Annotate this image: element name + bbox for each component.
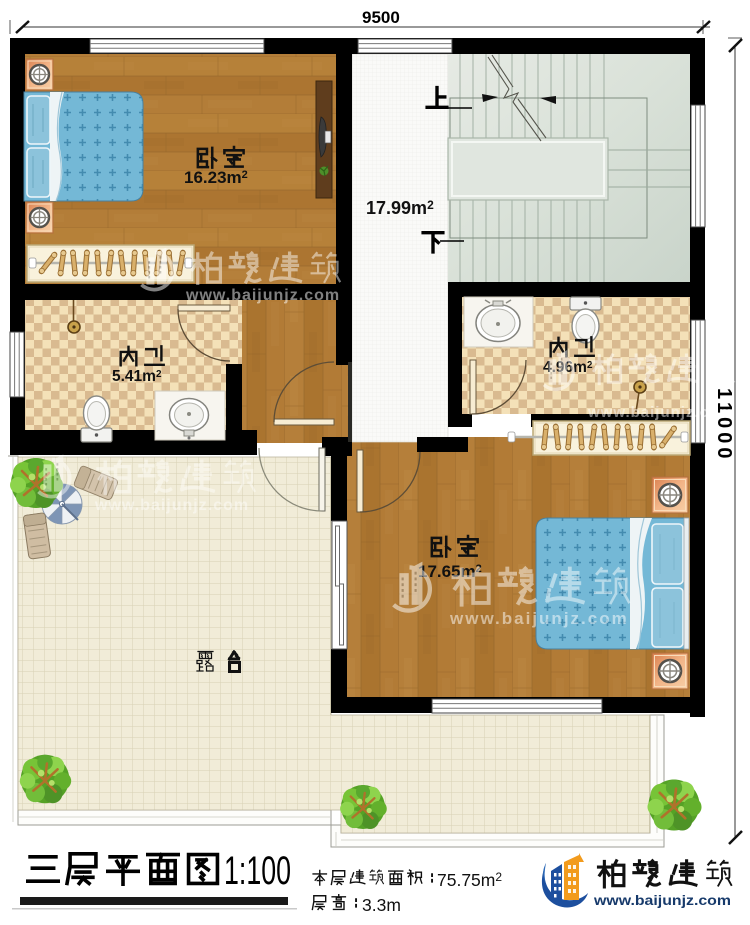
svg-text:www.baijunjz.com: www.baijunjz.com <box>593 892 731 908</box>
svg-text:75.75m2: 75.75m2 <box>437 870 502 890</box>
svg-text:1:100: 1:100 <box>224 849 291 893</box>
svg-text:www.baijunjz.com: www.baijunjz.com <box>587 404 733 421</box>
svg-text:9500: 9500 <box>362 8 400 27</box>
svg-text:www.baijunjz.com: www.baijunjz.com <box>185 287 340 304</box>
svg-text:11000: 11000 <box>713 388 735 463</box>
svg-text:5.41m2: 5.41m2 <box>112 368 162 385</box>
svg-text:17.99m2: 17.99m2 <box>366 198 434 218</box>
svg-text:www.baijunjz.com: www.baijunjz.com <box>449 609 629 628</box>
svg-text:16.23m2: 16.23m2 <box>184 168 248 187</box>
svg-text:3.3m: 3.3m <box>362 895 401 915</box>
svg-text:www.baijunjz.com: www.baijunjz.com <box>94 497 249 514</box>
